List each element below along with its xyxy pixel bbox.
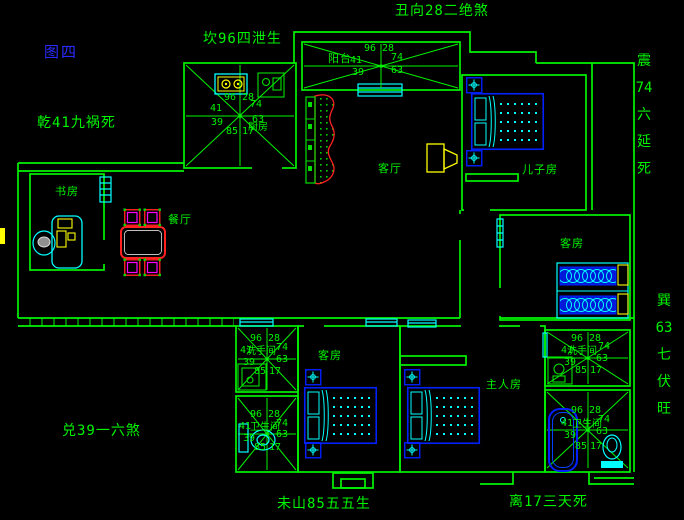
room-label-dining: 餐厅 bbox=[168, 214, 192, 225]
room-label-living: 客厅 bbox=[378, 163, 402, 174]
compass-number: 96 bbox=[364, 44, 376, 54]
tv-speaker bbox=[427, 144, 457, 172]
room-label-study: 书房 bbox=[55, 186, 79, 197]
room-label-master: 主人房 bbox=[486, 379, 522, 390]
compass-number: 41 bbox=[239, 422, 251, 432]
compass-number: 74 bbox=[250, 100, 262, 110]
dining-chair bbox=[124, 209, 141, 227]
door-openings bbox=[102, 165, 540, 328]
annotation-northwest: 乾41九祸死 bbox=[37, 116, 116, 130]
cad-floorplan-canvas: 图四 坎96四泄生 丑向28二绝煞 乾41九祸死 兑39一六煞 未山85五五生 … bbox=[0, 0, 684, 520]
dining-chair bbox=[124, 259, 141, 277]
compass-number: 63 bbox=[596, 427, 608, 437]
kitchen-sink bbox=[258, 73, 284, 97]
compass-number: 41 bbox=[561, 346, 573, 356]
nightstand bbox=[467, 78, 482, 93]
annotation-east-vertical: 震 74 六 延 死 bbox=[630, 48, 658, 183]
annotation-south: 离17三天死 bbox=[509, 495, 588, 509]
plant-cabinet bbox=[306, 95, 334, 184]
bed-master bbox=[408, 388, 480, 444]
compass-number: 63 bbox=[391, 66, 403, 76]
compass-number: 41 bbox=[210, 104, 222, 114]
figure-label: 图四 bbox=[44, 45, 78, 60]
compass-number: 85 bbox=[226, 127, 238, 137]
compass-number: 41 bbox=[350, 56, 362, 66]
compass-number: 96 bbox=[571, 334, 583, 344]
room-label-sons-room: 儿子房 bbox=[522, 164, 558, 175]
compass-number: 96 bbox=[250, 410, 262, 420]
annotation-southwest: 未山85五五生 bbox=[277, 497, 371, 511]
toilet-right bbox=[601, 435, 623, 468]
nightstand bbox=[405, 370, 420, 385]
compass-number: 96 bbox=[250, 334, 262, 344]
compass-number: 85 bbox=[254, 443, 266, 453]
compass-number: 17 bbox=[590, 366, 602, 376]
dining-chair bbox=[144, 259, 161, 277]
annotation-west: 兑39一六煞 bbox=[62, 424, 141, 438]
compass-number: 85 bbox=[575, 366, 587, 376]
compass-number: 17 bbox=[590, 442, 602, 452]
twin-beds-guest-right bbox=[557, 263, 628, 318]
annotation-southeast-vertical: 巽 63 七 伏 旺 bbox=[650, 288, 678, 423]
compass-number: 74 bbox=[598, 342, 610, 352]
annotation-north: 坎96四泄生 bbox=[203, 32, 282, 46]
nightstand bbox=[467, 151, 482, 166]
room-label-guest-bottom: 客房 bbox=[318, 350, 342, 361]
annotation-northeast: 丑向28二绝煞 bbox=[395, 4, 489, 18]
compass-number: 74 bbox=[276, 419, 288, 429]
nightstand bbox=[306, 370, 321, 385]
compass-number: 96 bbox=[224, 93, 236, 103]
corridor-railing bbox=[20, 318, 234, 326]
compass-number: 41 bbox=[561, 419, 573, 429]
bed-sons-room bbox=[472, 94, 544, 150]
compass-number: 39 bbox=[211, 118, 223, 128]
dining-chair bbox=[144, 209, 161, 227]
compass-number: 39 bbox=[564, 431, 576, 441]
dining-table bbox=[121, 227, 165, 258]
compass-number: 85 bbox=[254, 367, 266, 377]
nightstand bbox=[405, 443, 420, 458]
room-label-guest-right: 客房 bbox=[560, 238, 584, 249]
nightstand bbox=[306, 443, 321, 458]
compass-number: 74 bbox=[276, 343, 288, 353]
compass-number: 41 bbox=[240, 346, 252, 356]
compass-number: 17 bbox=[269, 443, 281, 453]
compass-number: 39 bbox=[352, 68, 364, 78]
compass-number: 74 bbox=[598, 415, 610, 425]
compass-number: 17 bbox=[242, 127, 254, 137]
compass-number: 63 bbox=[252, 115, 264, 125]
left-edge-marker bbox=[0, 228, 5, 244]
bed-guest-bottom bbox=[305, 388, 377, 444]
compass-number: 63 bbox=[276, 355, 288, 365]
compass-number: 85 bbox=[575, 442, 587, 452]
room-label-balcony: 阳台 bbox=[328, 53, 352, 64]
compass-number: 63 bbox=[276, 430, 288, 440]
stove bbox=[215, 74, 247, 94]
study-desk bbox=[52, 216, 82, 268]
compass-number: 96 bbox=[571, 406, 583, 416]
compass-number: 63 bbox=[596, 354, 608, 364]
compass-number: 74 bbox=[391, 53, 403, 63]
compass-number: 17 bbox=[269, 367, 281, 377]
